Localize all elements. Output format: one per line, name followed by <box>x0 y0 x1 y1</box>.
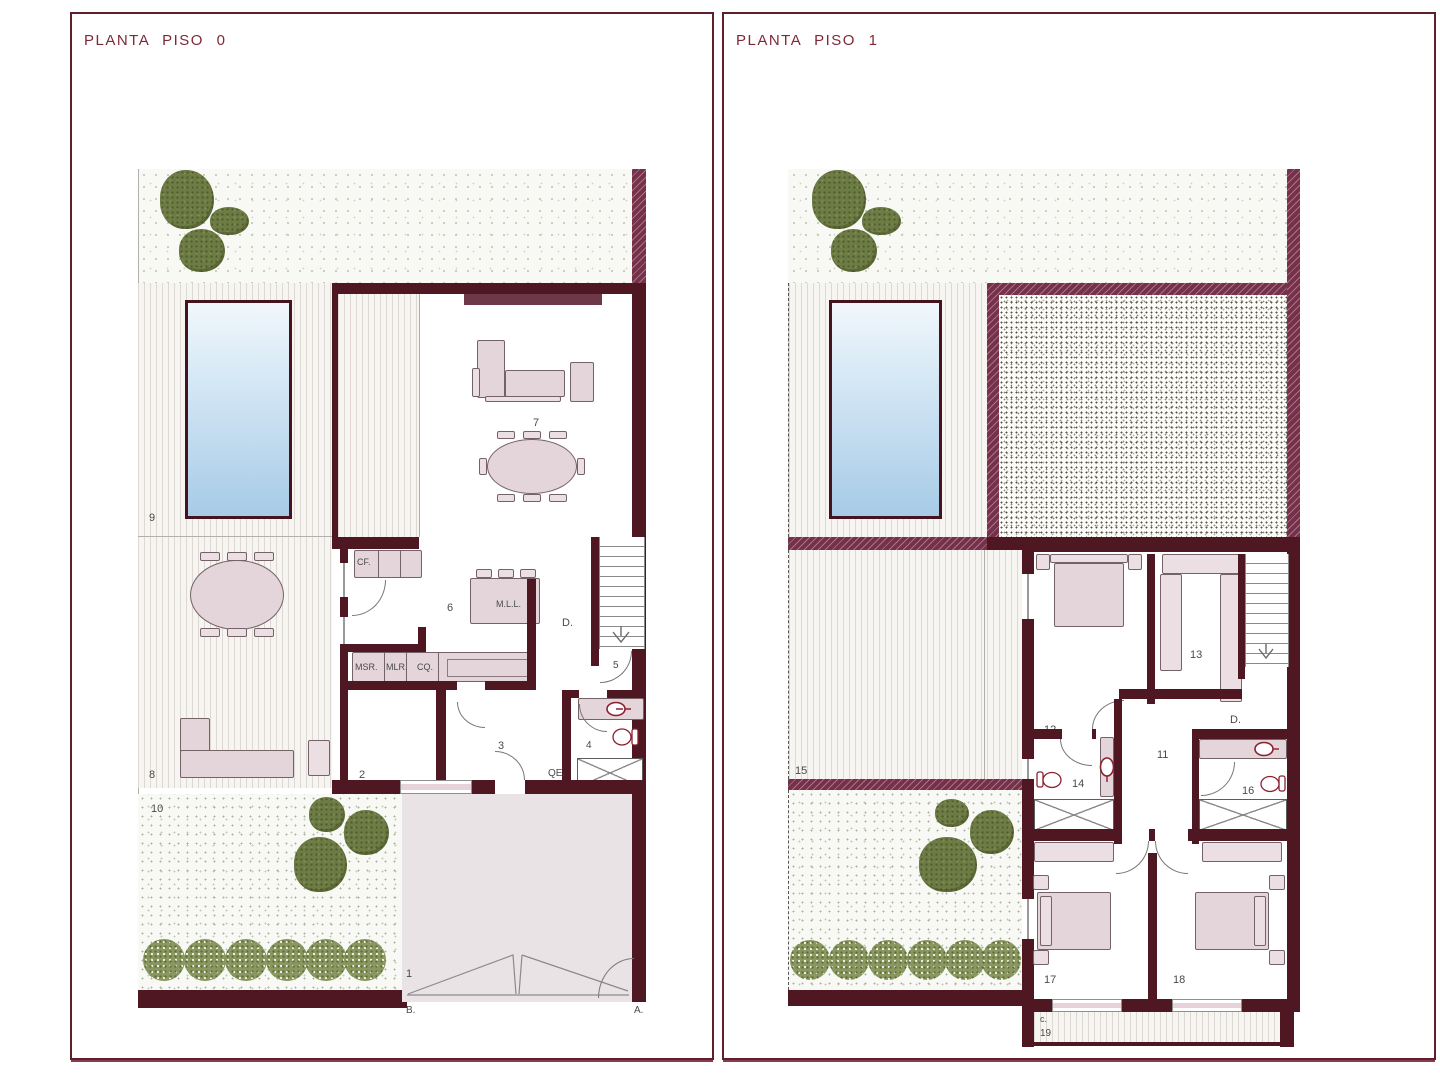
tree <box>862 207 901 235</box>
tree <box>970 810 1014 854</box>
hedge <box>344 939 386 981</box>
wall <box>138 990 407 1008</box>
tree <box>210 207 249 235</box>
hedge <box>143 939 185 981</box>
balcony-deck <box>1034 1012 1280 1042</box>
wardrobe <box>1034 842 1114 862</box>
wardrobe <box>1162 554 1242 574</box>
door-arc <box>495 751 525 780</box>
room-label-18: 18 <box>1173 975 1185 986</box>
wall <box>485 681 532 690</box>
nightstand <box>1269 950 1285 965</box>
wall <box>527 579 536 690</box>
room-label-19: 19 <box>1040 1029 1051 1039</box>
dining-table <box>487 439 577 494</box>
room-label-5: 5 <box>613 661 619 671</box>
chair <box>200 552 220 561</box>
door-arc <box>457 702 485 728</box>
tag-d: D. <box>1230 715 1241 726</box>
nightstand <box>1033 875 1049 890</box>
pool <box>185 300 292 519</box>
closet <box>1034 799 1114 831</box>
wall <box>472 780 495 794</box>
armchair <box>570 362 594 402</box>
tree <box>344 810 389 855</box>
chair <box>497 494 515 502</box>
chair <box>227 552 247 561</box>
wall <box>1148 853 1157 1012</box>
chair <box>549 431 567 439</box>
room-label-7: 7 <box>533 418 539 429</box>
chair <box>523 494 541 502</box>
wall <box>1238 554 1245 679</box>
wall <box>332 780 400 794</box>
plan1-title: PLANTA PISO 1 <box>736 32 878 49</box>
pillow <box>1254 896 1266 946</box>
tree <box>935 799 969 827</box>
beam <box>464 294 602 305</box>
gate <box>405 950 631 1000</box>
wall <box>1149 829 1155 841</box>
hedge <box>868 940 908 980</box>
wall <box>562 690 571 780</box>
sofa <box>505 370 565 397</box>
stair-down-arrow <box>610 626 632 646</box>
window <box>1052 999 1122 1012</box>
outdoor-sofa <box>180 750 294 778</box>
window <box>1022 759 1034 779</box>
window <box>1172 999 1242 1012</box>
wall <box>1280 1007 1294 1047</box>
bed <box>1054 563 1124 627</box>
tree <box>812 170 866 229</box>
door-arc <box>1201 762 1235 796</box>
hedge <box>184 939 226 981</box>
tag-a: A. <box>634 1006 643 1016</box>
wall <box>1022 829 1116 841</box>
wall <box>1192 729 1287 739</box>
wall <box>1092 729 1096 739</box>
room-label-15: 15 <box>795 766 807 777</box>
chair <box>523 431 541 439</box>
tag-mlr: MLR. <box>386 663 408 672</box>
nightstand <box>1033 950 1049 965</box>
wall <box>1188 829 1287 841</box>
wall <box>1122 999 1172 1012</box>
tag-mll: M.L.L. <box>496 600 521 609</box>
counter-divider <box>384 652 385 682</box>
closet <box>1199 799 1287 831</box>
wall <box>788 537 987 550</box>
deck-joint <box>984 550 985 779</box>
wall <box>607 690 646 698</box>
wall <box>632 792 646 1002</box>
room-label-8: 8 <box>149 770 155 781</box>
hedge <box>907 940 947 980</box>
sink-icon <box>1252 741 1280 757</box>
plan0-title: PLANTA PISO 0 <box>84 32 226 49</box>
wall <box>788 990 1024 1006</box>
chair <box>497 431 515 439</box>
sofa <box>477 340 505 398</box>
sofa-base <box>485 396 561 402</box>
room-label-1: 1 <box>406 969 412 980</box>
room-label-9: 9 <box>149 513 155 524</box>
counter-divider <box>400 550 401 578</box>
room-label-10: 10 <box>151 804 163 815</box>
tree <box>179 229 225 272</box>
wall <box>1034 1042 1280 1046</box>
window <box>400 780 472 794</box>
nightstand <box>1036 554 1050 570</box>
drawing-sheet: PLANTA PISO 0 9 8 <box>0 0 1440 1080</box>
window <box>340 617 348 647</box>
pillow <box>1040 896 1052 946</box>
chair <box>549 494 567 502</box>
roof-terrace <box>999 295 1287 537</box>
stair-down-arrow <box>1256 644 1276 662</box>
room-label-14: 14 <box>1072 779 1084 790</box>
hedge <box>829 940 869 980</box>
wall <box>1114 699 1122 844</box>
room-label-4: 4 <box>586 741 592 751</box>
chair <box>227 628 247 637</box>
door-arc <box>1060 739 1092 766</box>
outdoor-dining-table <box>190 560 284 630</box>
chair <box>200 628 220 637</box>
stool <box>498 569 514 578</box>
hedge <box>981 940 1021 980</box>
chair <box>254 552 274 561</box>
tree <box>309 797 345 832</box>
wall <box>570 690 579 698</box>
room-label-17: 17 <box>1044 975 1056 986</box>
window <box>1022 574 1034 619</box>
toilet-icon <box>610 726 640 748</box>
nightstand <box>1128 554 1142 570</box>
counter-divider <box>438 652 439 682</box>
wall <box>1022 729 1062 739</box>
chair <box>577 458 585 475</box>
tree <box>294 837 347 892</box>
wall <box>987 283 1287 295</box>
door-arc <box>1155 841 1188 874</box>
wall <box>987 283 999 537</box>
tree <box>831 229 877 272</box>
outdoor-chair <box>308 740 330 776</box>
window <box>340 563 348 597</box>
door-arc <box>579 704 607 732</box>
wall <box>525 780 646 794</box>
hedge <box>305 939 347 981</box>
tag-d: D. <box>562 618 573 629</box>
boundary-wall <box>632 169 646 283</box>
tag-qe: QE. <box>548 769 565 779</box>
wall <box>788 779 1022 790</box>
tag-c: c. <box>1040 1015 1047 1024</box>
wardrobe <box>1160 574 1182 671</box>
sink-icon <box>604 701 632 717</box>
hedge <box>266 939 308 981</box>
floorplan-piso0: PLANTA PISO 0 9 8 <box>70 12 714 1060</box>
wall <box>340 681 457 690</box>
window <box>1022 899 1034 939</box>
toilet-icon <box>1258 774 1286 794</box>
wall <box>340 644 425 652</box>
hedge <box>790 940 830 980</box>
tag-b: B. <box>406 1006 415 1016</box>
room-label-11: 11 <box>1157 750 1168 761</box>
room-label-6: 6 <box>447 603 453 614</box>
chair <box>254 628 274 637</box>
room-label-13: 13 <box>1190 650 1202 661</box>
covered-porch <box>338 294 420 537</box>
room-label-3: 3 <box>498 741 504 752</box>
wall <box>1119 689 1242 699</box>
wall <box>436 690 446 780</box>
wardrobe <box>1202 842 1282 862</box>
sink-icon <box>1099 756 1115 784</box>
nightstand <box>1269 875 1285 890</box>
door-arc <box>352 580 386 616</box>
counter-sink <box>447 659 529 677</box>
bed-headboard <box>1050 554 1128 563</box>
toilet-icon <box>1036 770 1064 790</box>
upper-deck <box>788 550 1023 779</box>
tree <box>160 170 214 229</box>
wall <box>591 537 599 666</box>
door-arc <box>1116 841 1149 874</box>
tag-cq: CQ. <box>417 663 433 672</box>
counter-divider <box>378 550 379 578</box>
floorplan-piso1: PLANTA PISO 1 15 <box>722 12 1436 1060</box>
tag-msr: MSR. <box>355 663 378 672</box>
boundary-wall <box>1287 169 1300 542</box>
stool <box>520 569 536 578</box>
tag-cf: CF. <box>357 558 371 567</box>
tree <box>919 837 977 892</box>
wall <box>338 283 646 294</box>
armrest <box>472 368 480 397</box>
pool <box>829 300 942 519</box>
stool <box>476 569 492 578</box>
chair <box>479 458 487 475</box>
wall <box>1022 1007 1034 1047</box>
wall <box>1147 554 1155 704</box>
hedge <box>945 940 985 980</box>
room-label-16: 16 <box>1242 786 1254 797</box>
hedge <box>225 939 267 981</box>
